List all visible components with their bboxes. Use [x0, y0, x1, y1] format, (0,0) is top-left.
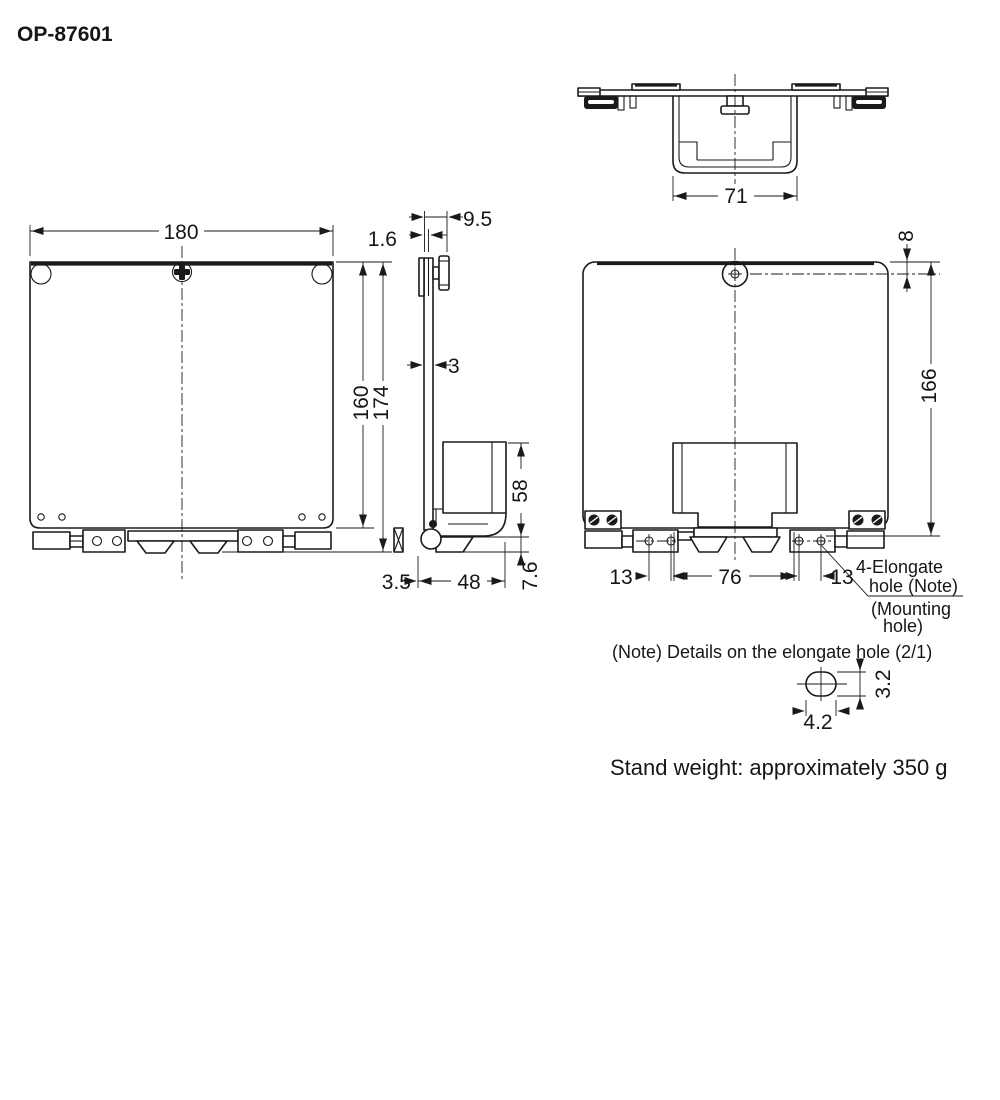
dim-label-8: 8: [895, 230, 918, 242]
page-title: OP-87601: [17, 23, 113, 46]
dim-label-58: 58: [509, 479, 532, 502]
foot-right: [190, 541, 227, 553]
holder-side: [443, 442, 506, 513]
detail-note: (Note) Details on the elongate hole (2/1…: [612, 642, 932, 662]
mounting-rail-rear: [585, 528, 884, 552]
clip-plate-right: [849, 511, 885, 529]
dim-label-13-left: 13: [609, 566, 632, 589]
foot-right: [743, 537, 780, 552]
front-plate: [30, 262, 333, 528]
dim-label-180: 180: [163, 221, 198, 244]
pivot-screw: [429, 520, 437, 528]
technical-drawing: OP-87601: [0, 0, 1000, 1100]
side-view: 9.5 1.6 3: [368, 208, 542, 594]
callout-elongate-line1: 4-Elongate: [856, 557, 943, 577]
dim-label-76: 76: [718, 566, 741, 589]
dim-label-174: 174: [370, 385, 393, 420]
dim-label-3.2: 3.2: [872, 669, 895, 698]
dim-label-4.2: 4.2: [803, 711, 832, 734]
dim-label-166: 166: [918, 368, 941, 403]
technical-drawing-page: OP-87601: [0, 0, 1000, 1100]
dim-label-3: 3: [448, 355, 460, 378]
thumbscrew-side: [433, 256, 449, 290]
clip-plate-left: [585, 511, 621, 529]
elongate-hole-detail: (Note) Details on the elongate hole (2/1…: [612, 642, 932, 734]
front-view: 180: [30, 221, 393, 580]
dim-label-7.6: 7.6: [519, 561, 542, 590]
top-view: 71: [578, 74, 888, 208]
rear-view: 8 166 13 76 13 4-Elongate hole (Note) (M…: [583, 230, 963, 636]
wall-hook: [394, 528, 403, 552]
dim-label-48: 48: [457, 571, 480, 594]
stand-weight-note: Stand weight: approximately 350 g: [610, 755, 948, 780]
hinge-roller: [421, 529, 441, 549]
dim-label-71: 71: [724, 185, 747, 208]
foot-left: [137, 541, 174, 553]
foot-left: [690, 537, 727, 552]
side-plate: [424, 258, 433, 530]
dim-label-9.5: 9.5: [463, 208, 492, 231]
dim-label-13-right: 13: [830, 566, 853, 589]
dim-label-3.5: 3.5: [382, 571, 411, 594]
callout-mounting-line2: hole): [883, 616, 923, 636]
dim-label-1.6: 1.6: [368, 228, 397, 251]
callout-elongate-line2: hole (Note): [869, 576, 958, 596]
